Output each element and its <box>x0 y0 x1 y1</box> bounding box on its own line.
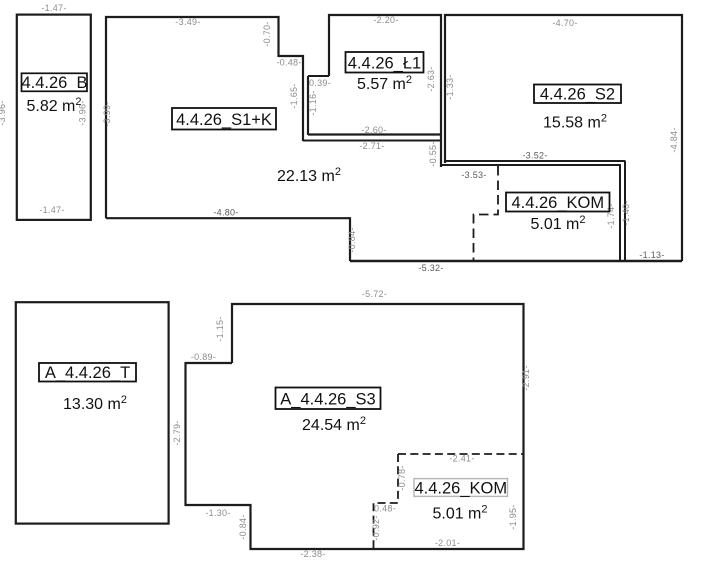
svg-text:-3.99-: -3.99- <box>102 101 112 126</box>
svg-text:-1.16-: -1.16- <box>308 90 318 115</box>
svg-text:-0.55-: -0.55- <box>428 141 438 166</box>
svg-text:4.4.26_Ł1: 4.4.26_Ł1 <box>348 55 421 73</box>
svg-text:-2.60-: -2.60- <box>361 125 386 135</box>
svg-text:-2.01-: -2.01- <box>435 538 460 548</box>
svg-text:-3.53-: -3.53- <box>461 170 486 180</box>
svg-text:-2.63-: -2.63- <box>426 66 436 91</box>
svg-text:-2.20-: -2.20- <box>373 15 398 25</box>
svg-text:-0.48-: -0.48- <box>276 58 301 68</box>
svg-text:-0.92-: -0.92- <box>371 515 381 540</box>
svg-text:-1.95-: -1.95- <box>508 504 518 529</box>
svg-text:A_4.4.26_S3: A_4.4.26_S3 <box>280 391 375 409</box>
svg-text:5.82 m2: 5.82 m2 <box>26 96 81 115</box>
svg-text:22.13 m2: 22.13 m2 <box>277 166 341 185</box>
svg-text:-5.32-: -5.32- <box>418 263 443 273</box>
svg-text:A_4.4.26_T: A_4.4.26_T <box>45 364 130 382</box>
svg-text:4.4.26_B: 4.4.26_B <box>21 74 87 92</box>
svg-text:-0.84-: -0.84- <box>347 227 357 252</box>
svg-text:-1.33-: -1.33- <box>445 74 455 99</box>
svg-text:-4.84-: -4.84- <box>669 127 679 152</box>
svg-text:-5.72-: -5.72- <box>362 289 387 299</box>
svg-text:-2.41-: -2.41- <box>449 454 474 464</box>
svg-text:4.4.26_S1+K: 4.4.26_S1+K <box>176 111 272 129</box>
svg-text:-1.65-: -1.65- <box>289 83 299 108</box>
svg-text:-1.40-: -1.40- <box>621 200 631 225</box>
svg-text:-1.13-: -1.13- <box>639 250 664 260</box>
svg-text:-3.96-: -3.96- <box>0 100 7 125</box>
svg-text:-2.91-: -2.91- <box>521 365 531 390</box>
svg-text:-3.52-: -3.52- <box>522 151 547 161</box>
svg-text:-0.84-: -0.84- <box>238 514 248 539</box>
svg-text:-1.30-: -1.30- <box>205 508 230 518</box>
svg-text:4.4.26_S2: 4.4.26_S2 <box>540 86 615 104</box>
svg-text:-0.89-: -0.89- <box>191 352 216 362</box>
svg-text:-1.47-: -1.47- <box>39 205 64 215</box>
svg-text:15.58 m2: 15.58 m2 <box>543 113 607 132</box>
svg-text:5.57 m2: 5.57 m2 <box>357 74 412 93</box>
svg-text:-1.74-: -1.74- <box>606 203 616 228</box>
svg-text:5.01 m2: 5.01 m2 <box>530 214 585 233</box>
svg-text:-1.15-: -1.15- <box>215 316 225 341</box>
svg-text:-2.71-: -2.71- <box>359 141 384 151</box>
svg-text:-2.79-: -2.79- <box>172 420 182 445</box>
svg-text:0.48-: 0.48- <box>374 504 396 514</box>
svg-text:24.54 m2: 24.54 m2 <box>302 415 366 434</box>
svg-text:-0.78-: -0.78- <box>397 465 407 490</box>
svg-text:4.4.26_KOM: 4.4.26_KOM <box>414 480 507 498</box>
svg-text:-4.70-: -4.70- <box>552 18 577 28</box>
svg-text:-1.47-: -1.47- <box>41 3 66 13</box>
svg-text:-4.80-: -4.80- <box>213 208 238 218</box>
svg-text:-0.70-: -0.70- <box>262 21 272 46</box>
svg-text:4.4.26_KOM: 4.4.26_KOM <box>511 194 604 212</box>
svg-text:5.01 m2: 5.01 m2 <box>432 504 487 523</box>
svg-text:13.30 m2: 13.30 m2 <box>63 394 127 413</box>
svg-text:-2.38-: -2.38- <box>300 549 325 559</box>
svg-text:-3.49-: -3.49- <box>175 17 200 27</box>
svg-text:0.39-: 0.39- <box>309 78 331 88</box>
